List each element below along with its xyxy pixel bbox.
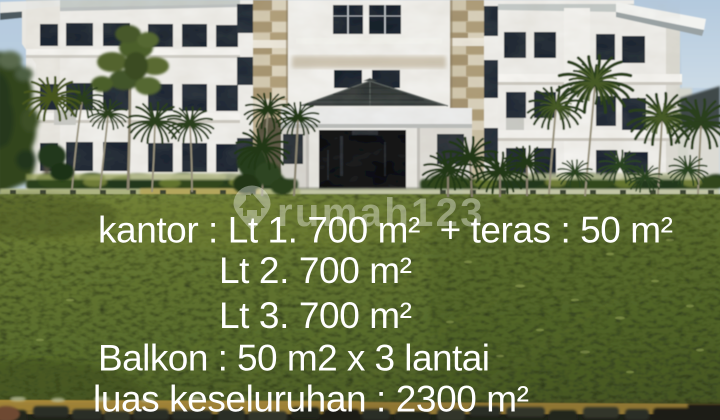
svg-text:kantor : Lt 1. 700 m² + teras: kantor : Lt 1. 700 m² + teras : 50 m²	[98, 210, 673, 251]
svg-text:Balkon : 50 m2 x 3 lantai: Balkon : 50 m2 x 3 lantai	[98, 338, 490, 379]
svg-text:Lt 3. 700 m²: Lt 3. 700 m²	[219, 295, 412, 336]
svg-text:Lt 2. 700 m²: Lt 2. 700 m²	[219, 250, 412, 291]
svg-text:luas keseluruhan : 2300 m²: luas keseluruhan : 2300 m²	[93, 379, 529, 420]
